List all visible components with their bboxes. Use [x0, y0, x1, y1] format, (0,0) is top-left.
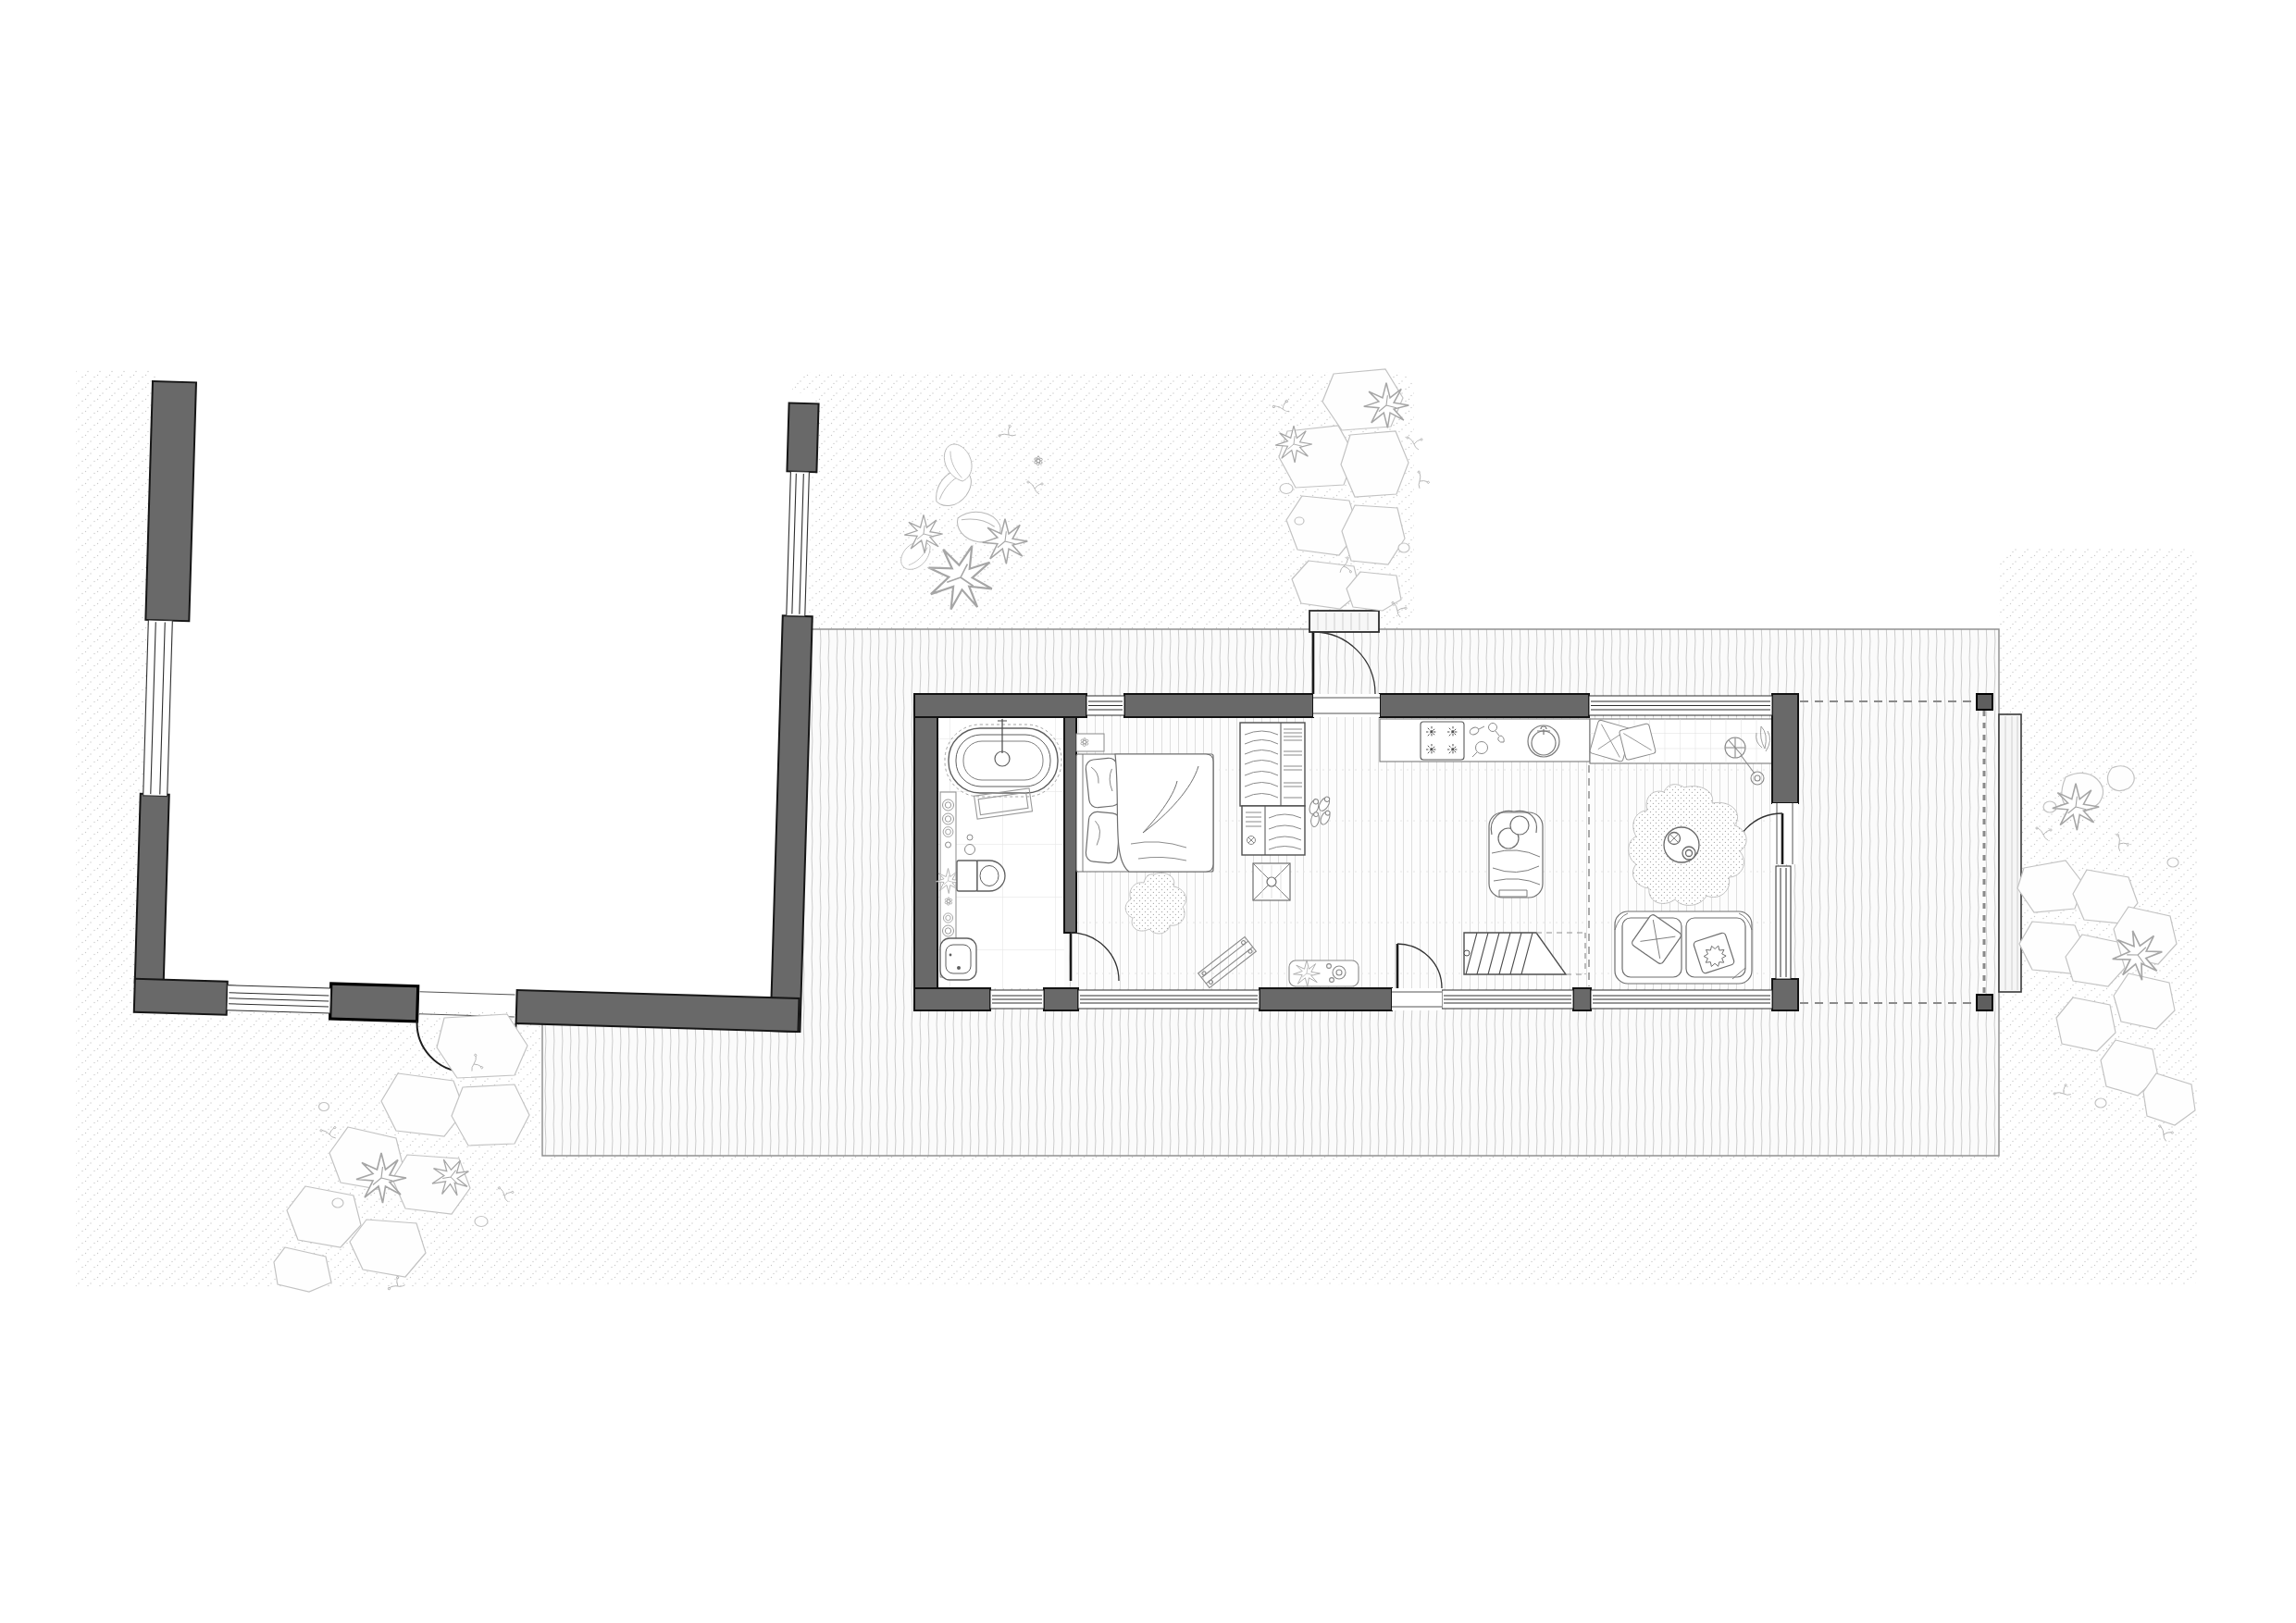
old-building-floor — [148, 374, 814, 1010]
window-north-small — [1086, 696, 1124, 715]
old-wall-south-pier — [330, 984, 418, 1022]
wardrobe — [1240, 723, 1305, 855]
porch-post-north — [1977, 694, 1992, 710]
old-wall-west-upper — [145, 381, 196, 621]
wall-south-b — [1260, 988, 1392, 1010]
gravel-east — [1999, 548, 2199, 1158]
window-east — [1776, 866, 1791, 979]
porch-post-south — [1977, 995, 1992, 1010]
old-wall-west-lower — [135, 794, 169, 984]
wall-south-pier2 — [1573, 988, 1591, 1010]
window-south-living1 — [1442, 990, 1573, 1009]
window-south-bath — [990, 990, 1044, 1009]
pillow-2 — [1086, 811, 1122, 864]
wall-north-b — [1124, 694, 1313, 717]
window-north-large — [1589, 696, 1772, 715]
double-bed — [1076, 754, 1213, 872]
wall-partition-bath — [1064, 717, 1076, 933]
toilet — [957, 861, 1005, 891]
old-wall-south-b — [516, 990, 800, 1032]
floor-plan-canvas: Architectural floor plan drawing of a sm… — [0, 0, 2296, 1623]
porch-side-step — [1999, 714, 2021, 992]
old-wall-east-stub — [787, 403, 818, 472]
chaise-lounge — [1489, 811, 1543, 898]
gravel-south-band — [542, 1156, 2199, 1285]
kitchen-counter — [1380, 719, 1590, 762]
wall-corner-ne — [1772, 694, 1798, 803]
window-old-south — [227, 985, 331, 1013]
old-building — [132, 374, 819, 1082]
wood-stove — [1664, 827, 1699, 862]
wall-corner-se — [1772, 979, 1798, 1010]
entry-landing-step — [1309, 611, 1379, 632]
old-wall-south-a — [134, 979, 228, 1015]
bedside-shelf — [1076, 734, 1104, 751]
duvet — [1115, 754, 1213, 872]
washbasin — [940, 938, 976, 980]
wall-south-a — [914, 988, 990, 1010]
window-south-bedroom — [1078, 990, 1260, 1009]
window-old-west — [143, 620, 173, 797]
window-old-east — [787, 471, 810, 616]
wall-west — [914, 694, 937, 1010]
sofa — [1615, 911, 1752, 984]
floor-tray — [1289, 960, 1359, 987]
wall-north-c — [1380, 694, 1589, 717]
wall-north-a — [914, 694, 1086, 717]
cooktop — [1421, 722, 1464, 760]
floor-plan-svg: Architectural floor plan drawing of a sm… — [0, 0, 2296, 1623]
x-ottoman — [1253, 863, 1290, 900]
window-south-living2 — [1591, 990, 1772, 1009]
wall-south-pier1 — [1044, 988, 1078, 1010]
